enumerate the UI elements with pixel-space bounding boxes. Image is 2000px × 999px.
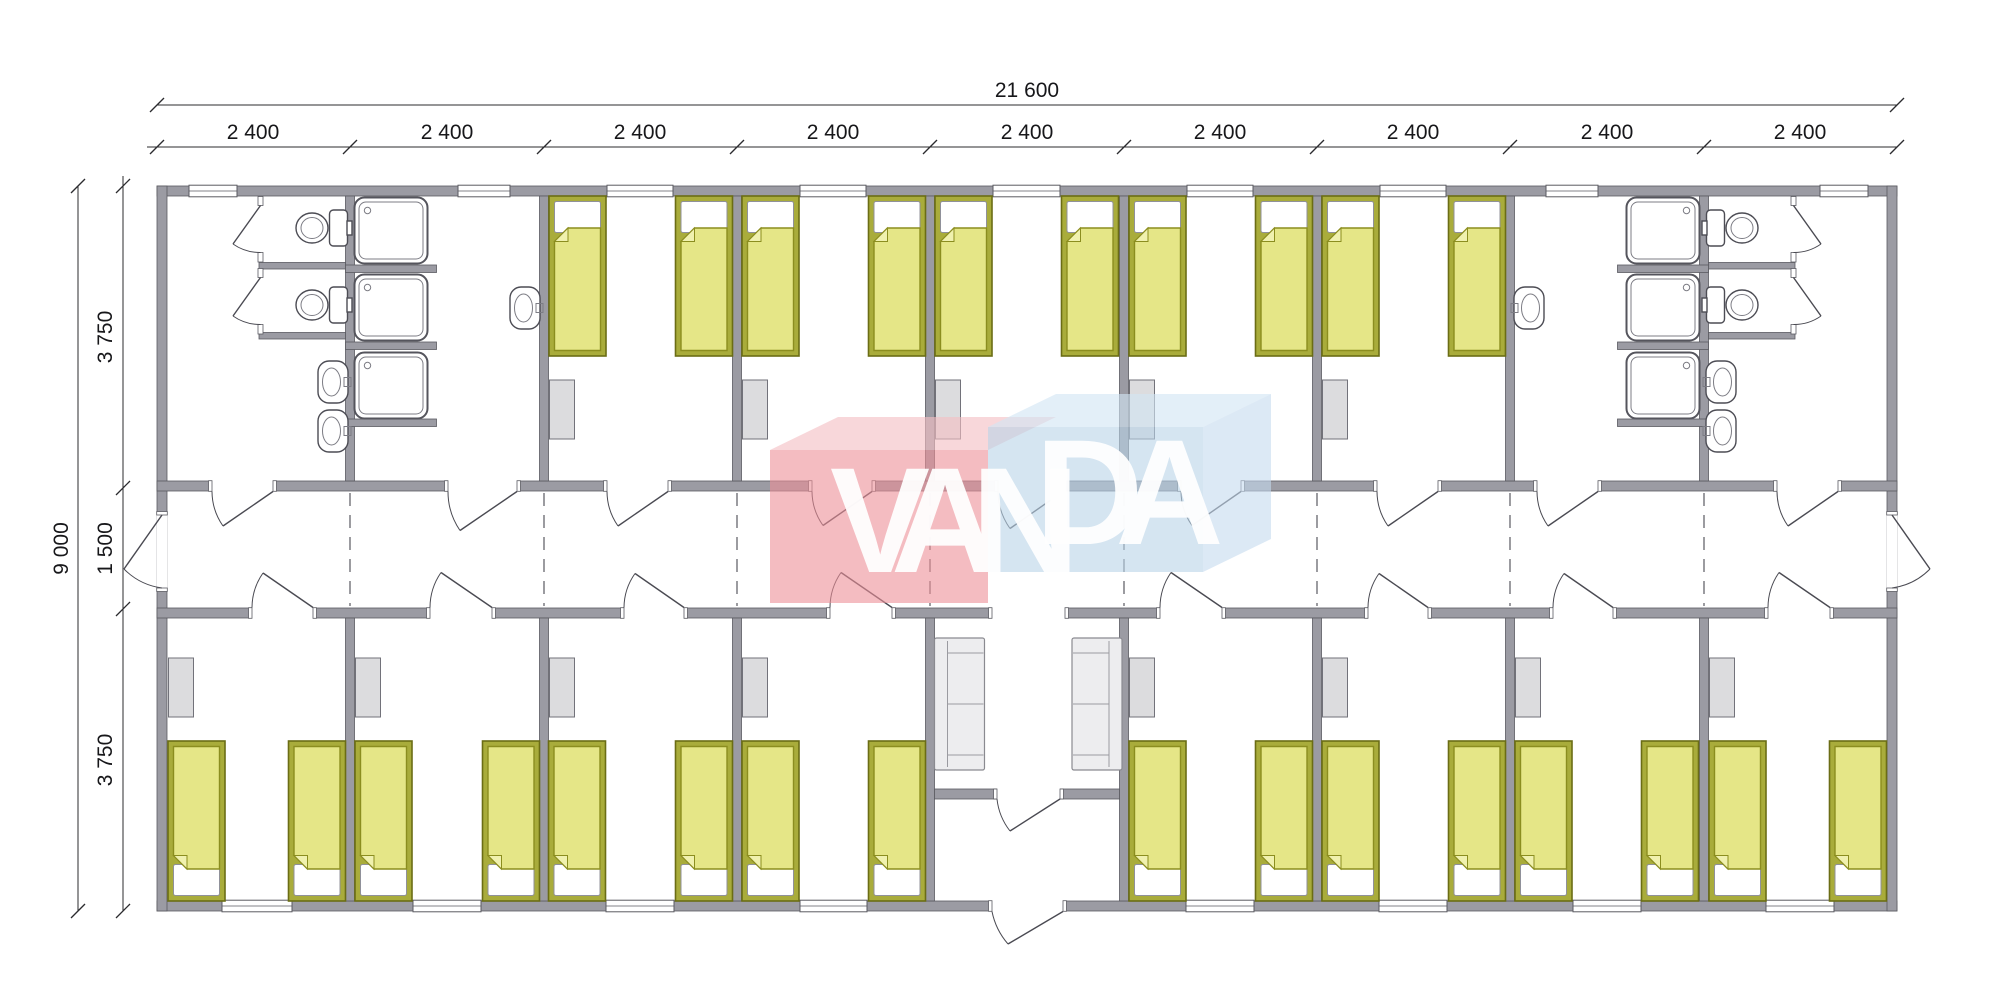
bed	[1256, 741, 1313, 901]
shower-tray	[1627, 198, 1700, 264]
wash-basin	[1511, 287, 1544, 329]
bed	[1256, 196, 1313, 356]
exterior-door	[1887, 512, 1930, 592]
bed	[289, 741, 346, 901]
shower-tray	[1627, 353, 1700, 419]
toilet	[296, 210, 352, 246]
bed	[1515, 741, 1572, 901]
window	[993, 185, 1060, 197]
bed	[355, 741, 412, 901]
window	[1820, 185, 1868, 197]
bed	[549, 741, 606, 901]
window	[1380, 185, 1446, 197]
window	[1379, 900, 1447, 912]
window	[800, 185, 866, 197]
dimension-label-total-height: 9 000	[50, 522, 73, 575]
entrance-door	[989, 900, 1067, 944]
wardrobe	[550, 658, 575, 717]
wash-basin	[1703, 410, 1736, 452]
window	[189, 185, 237, 197]
door	[1550, 574, 1617, 619]
window	[1186, 900, 1254, 912]
wardrobe	[1130, 658, 1155, 717]
wardrobe	[1710, 658, 1735, 717]
sofa	[1072, 638, 1122, 770]
bed	[1449, 741, 1506, 901]
window	[606, 900, 674, 912]
dimension-label-segment: 1 500	[94, 522, 117, 575]
dimension-left-segments: 3 750 1 500 3 750	[94, 176, 130, 918]
vanda-logo: VAN DA	[770, 394, 1271, 604]
dimension-top-modules: 2 400 2 400 2 400 2 400 2 400 2 400 2 40…	[147, 121, 1904, 154]
dimension-label-module: 2 400	[1774, 121, 1827, 144]
window	[1187, 185, 1253, 197]
wardrobe	[169, 658, 194, 717]
bed	[168, 741, 225, 901]
window	[607, 185, 673, 197]
bed	[1129, 196, 1186, 356]
floor-plan-canvas: 21 600 2 400 2 400 2 400 2 400 2 400 2 4…	[0, 0, 2000, 999]
floor-plan-drawing: 21 600 2 400 2 400 2 400 2 400 2 400 2 4…	[0, 0, 2000, 999]
dimension-label-total-width: 21 600	[995, 79, 1059, 102]
logo-text-da: DA	[1035, 408, 1220, 576]
bed	[1062, 196, 1119, 356]
wardrobe	[550, 380, 575, 439]
wardrobe	[1516, 658, 1541, 717]
bed	[1322, 196, 1379, 356]
dimension-label-segment: 3 750	[94, 311, 117, 364]
dimension-label-module: 2 400	[1581, 121, 1634, 144]
dimension-label-module: 2 400	[1194, 121, 1247, 144]
window	[222, 900, 292, 912]
door	[1534, 480, 1602, 526]
toilet	[1702, 210, 1758, 246]
door	[604, 480, 672, 526]
bed	[1129, 741, 1186, 901]
stall-door	[233, 278, 261, 325]
stall-door	[1794, 278, 1822, 325]
shower-tray	[355, 353, 428, 419]
bed	[869, 196, 926, 356]
wash-basin	[318, 361, 351, 403]
bed	[1709, 741, 1766, 901]
door	[209, 480, 277, 526]
dimension-label-module: 2 400	[421, 121, 474, 144]
window	[800, 900, 867, 912]
toilet	[296, 287, 352, 323]
dimension-label-module: 2 400	[1387, 121, 1440, 144]
dimension-left-total: 9 000	[50, 179, 85, 918]
bed	[1449, 196, 1506, 356]
wardrobe	[1323, 658, 1348, 717]
shower-tray	[1627, 275, 1700, 341]
wardrobe	[356, 658, 381, 717]
door	[1157, 573, 1226, 619]
window	[1573, 900, 1641, 912]
wash-basin	[318, 410, 351, 452]
stall-door	[233, 206, 261, 253]
bed	[676, 741, 733, 901]
shower-tray	[355, 275, 428, 341]
wardrobe	[743, 658, 768, 717]
bed	[869, 741, 926, 901]
wash-basin	[1703, 361, 1736, 403]
window	[413, 900, 481, 912]
door	[621, 574, 688, 619]
dimension-label-module: 2 400	[1001, 121, 1054, 144]
door	[1365, 574, 1432, 619]
shower-tray	[355, 198, 428, 264]
window	[458, 185, 510, 197]
bed	[1322, 741, 1379, 901]
exterior-door	[124, 512, 167, 592]
window	[1766, 900, 1834, 912]
doorway-opening	[989, 607, 1069, 619]
stall-door	[1794, 206, 1822, 253]
dimension-label-module: 2 400	[807, 121, 860, 144]
bed	[935, 196, 992, 356]
dimension-label-segment: 3 750	[94, 734, 117, 787]
door	[1374, 480, 1442, 526]
wash-basin	[510, 287, 543, 329]
door	[249, 573, 317, 619]
dimension-label-module: 2 400	[227, 121, 280, 144]
sofa	[935, 638, 985, 770]
bed	[1642, 741, 1699, 901]
vestibule-door	[994, 789, 1064, 832]
door	[1765, 573, 1834, 619]
bed	[742, 741, 799, 901]
bed	[676, 196, 733, 356]
bed	[1830, 741, 1887, 901]
dimension-label-module: 2 400	[614, 121, 667, 144]
toilet	[1702, 287, 1758, 323]
door	[427, 573, 496, 619]
window	[1546, 185, 1598, 197]
door	[445, 480, 521, 530]
dimension-top-total: 21 600	[150, 79, 1904, 112]
bed	[549, 196, 606, 356]
bed	[483, 741, 540, 901]
door	[1774, 480, 1842, 526]
wardrobe	[743, 380, 768, 439]
bed	[742, 196, 799, 356]
wardrobe	[1323, 380, 1348, 439]
